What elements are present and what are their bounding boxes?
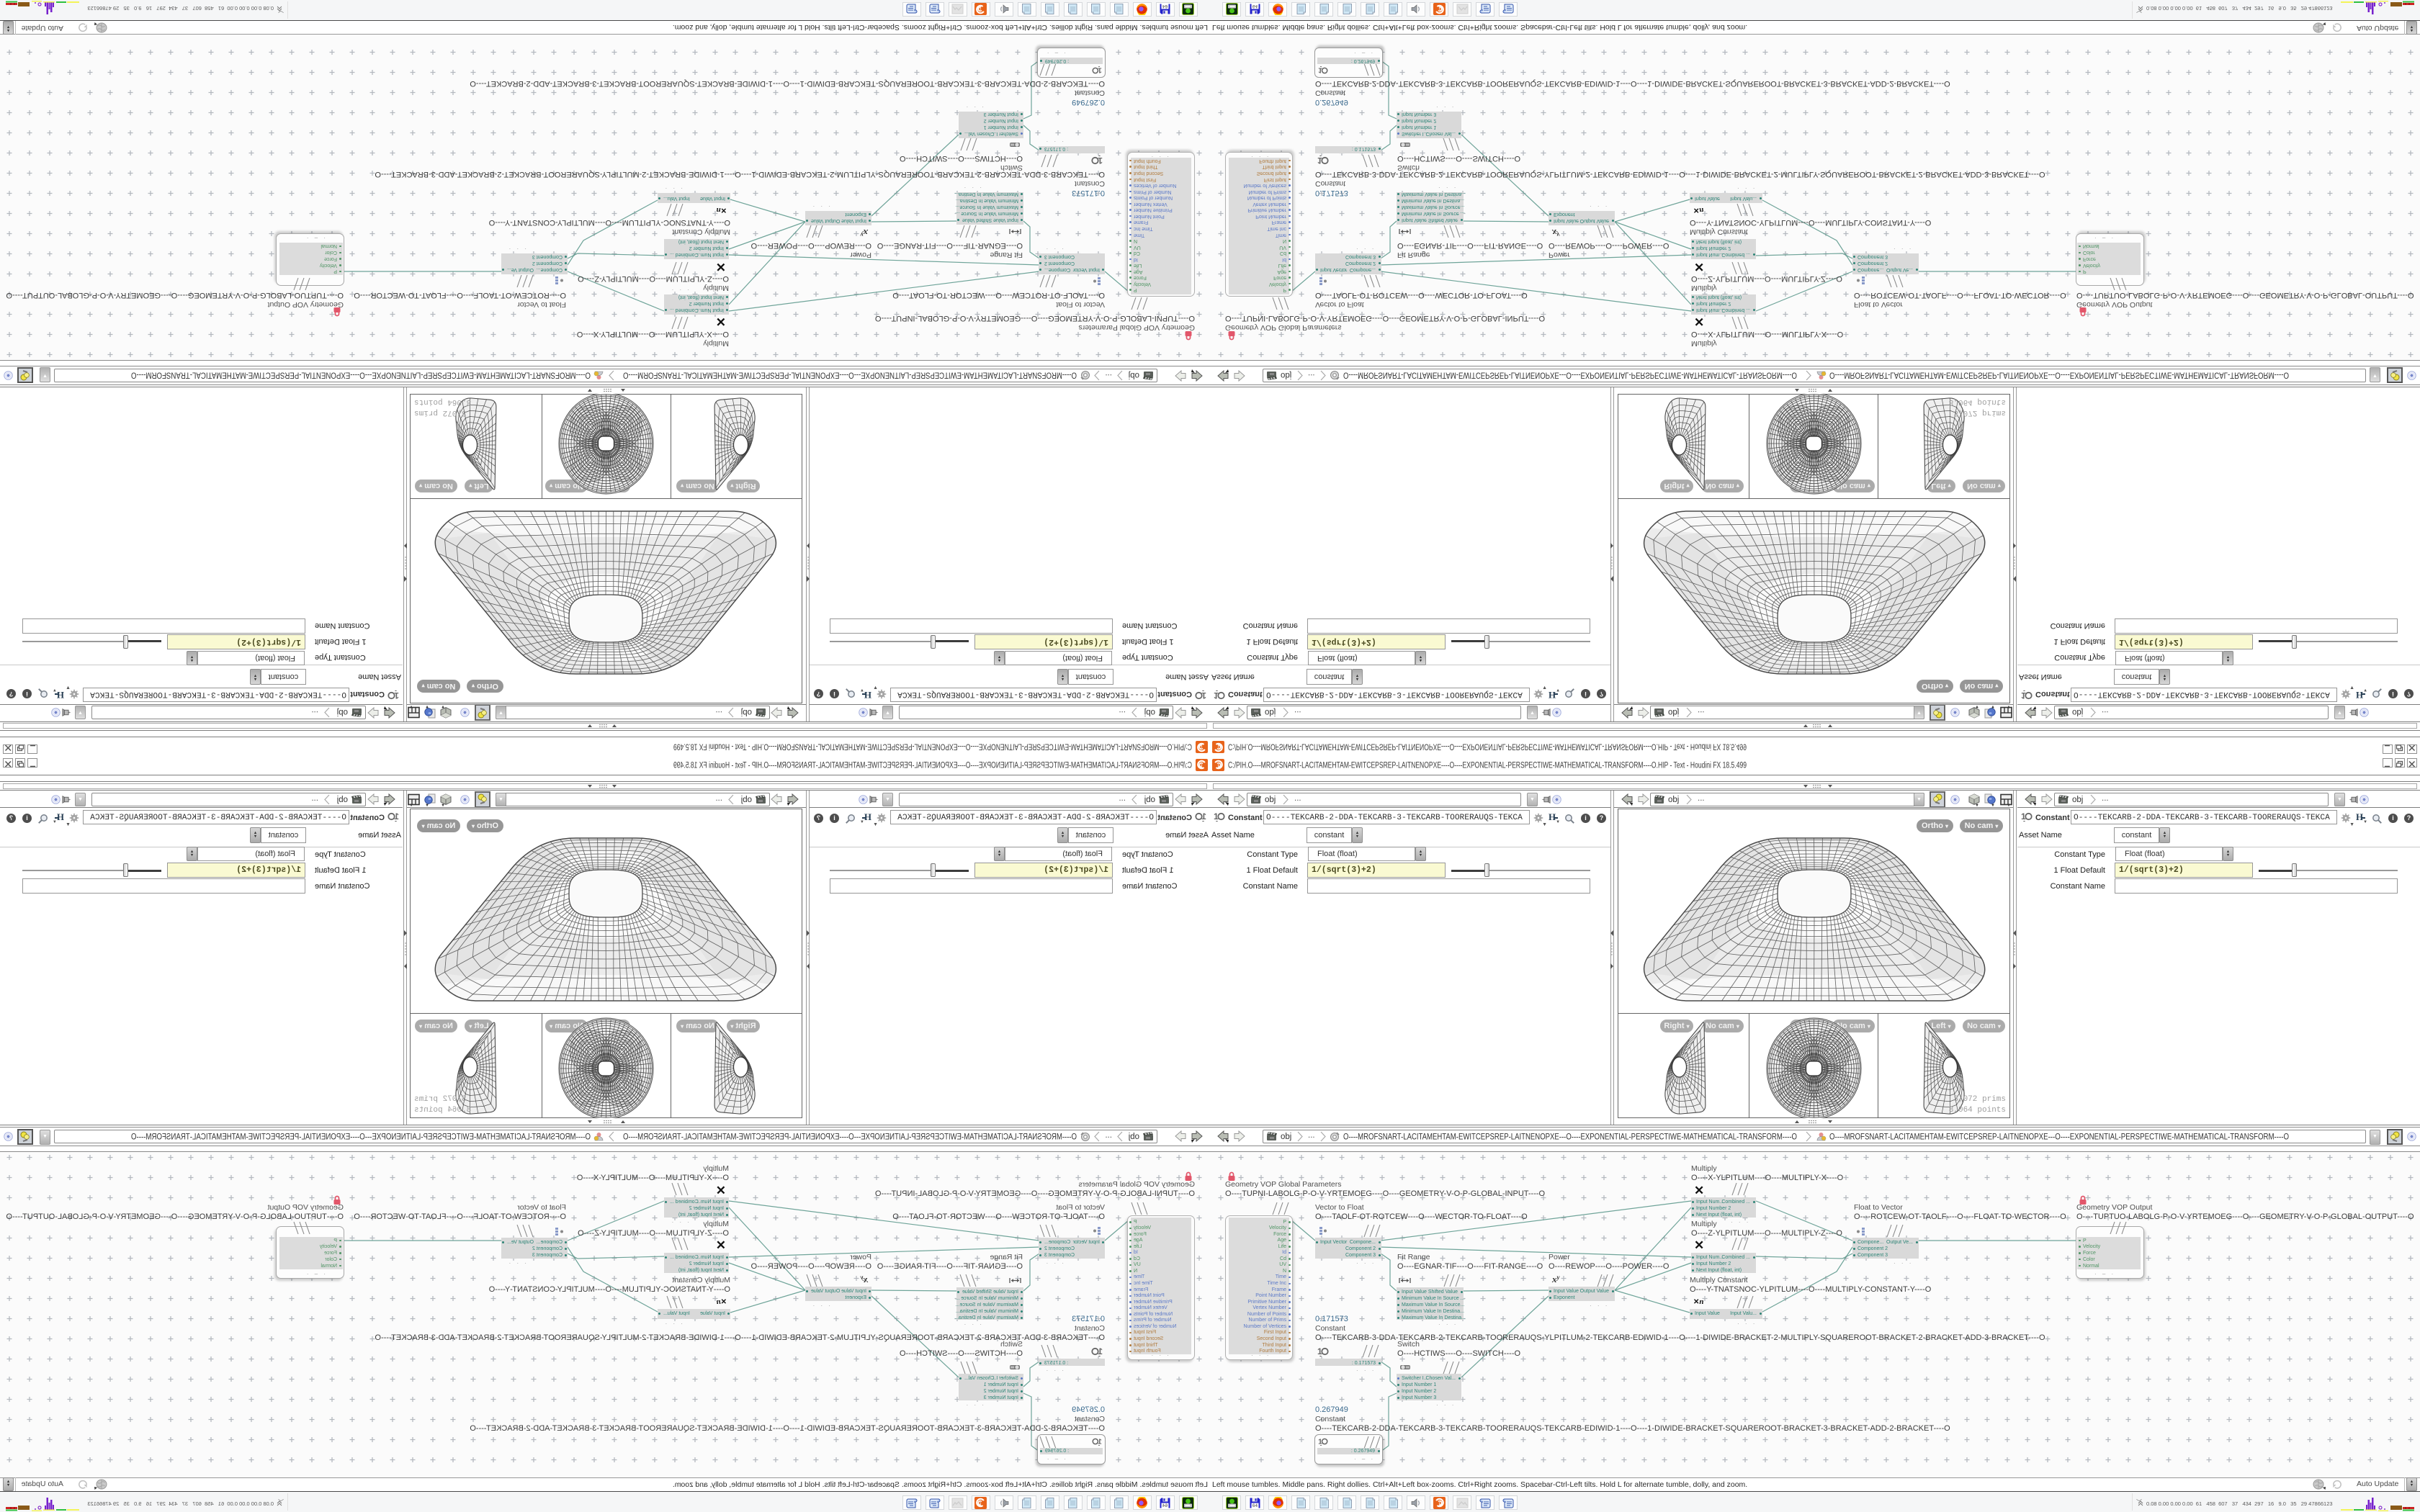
svg-text:64: 64: [1252, 1503, 1258, 1508]
svg-text:O----MROFSNART-LACITAMEHTAM-EW: O----MROFSNART-LACITAMEHTAM-EWITCEPSREP-…: [623, 1133, 1077, 1142]
svg-text:O----MROFSNART-LACITAMEHTAM-EW: O----MROFSNART-LACITAMEHTAM-EWITCEPSREP-…: [1829, 1133, 2289, 1142]
svg-text:O----MROFSNART-LACITAMEHTAM-EW: O----MROFSNART-LACITAMEHTAM-EWITCEPSREP-…: [1343, 1133, 1797, 1142]
svg-text:O----MROFSNART-LACITAMEHTAM-EW: O----MROFSNART-LACITAMEHTAM-EWITCEPSREP-…: [1343, 371, 1797, 379]
svg-text:O----MROFSNART-LACITAMEHTAM-EW: O----MROFSNART-LACITAMEHTAM-EWITCEPSREP-…: [623, 371, 1077, 379]
svg-text:O----MROFSNART-LACITAMEHTAM-EW: O----MROFSNART-LACITAMEHTAM-EWITCEPSREP-…: [131, 371, 591, 379]
svg-text:64: 64: [1252, 4, 1258, 9]
svg-text:O----MROFSNART-LACITAMEHTAM-EW: O----MROFSNART-LACITAMEHTAM-EWITCEPSREP-…: [1829, 371, 2289, 379]
svg-text:64: 64: [1162, 1503, 1168, 1508]
svg-text:64: 64: [1162, 4, 1168, 9]
svg-text:O----MROFSNART-LACITAMEHTAM-EW: O----MROFSNART-LACITAMEHTAM-EWITCEPSREP-…: [131, 1133, 591, 1142]
